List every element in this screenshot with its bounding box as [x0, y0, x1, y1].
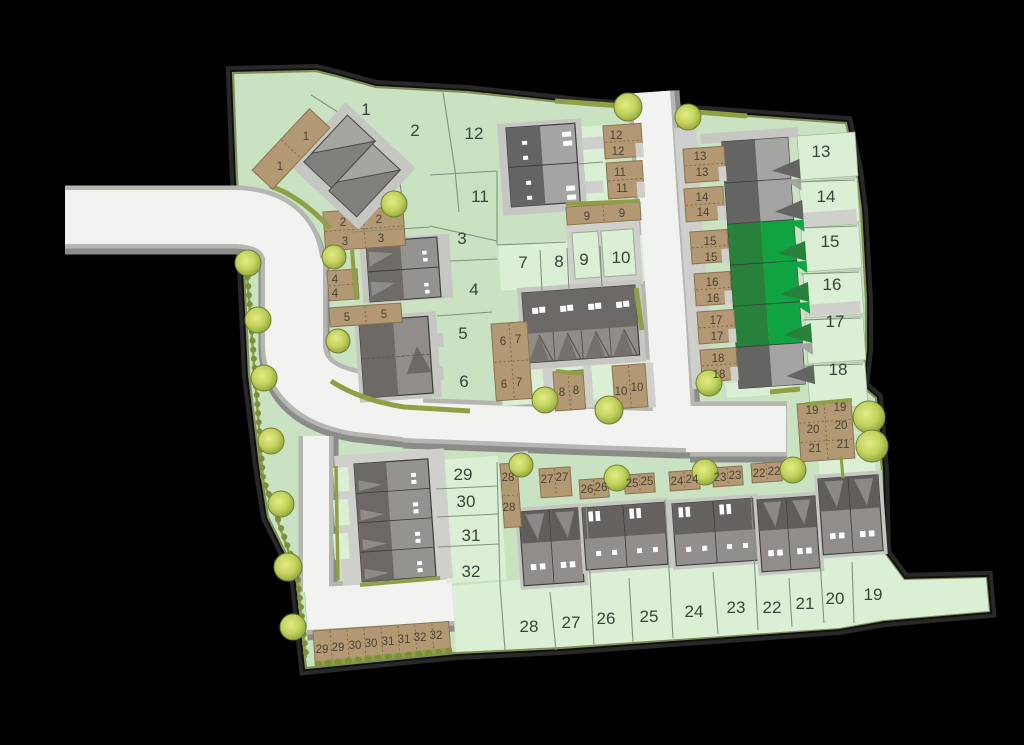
- svg-text:2: 2: [376, 214, 382, 226]
- svg-text:7: 7: [518, 253, 527, 272]
- svg-text:1: 1: [361, 100, 370, 119]
- svg-text:28: 28: [503, 502, 516, 514]
- svg-text:18: 18: [829, 360, 848, 379]
- svg-text:5: 5: [458, 324, 467, 343]
- svg-text:13: 13: [694, 151, 707, 163]
- svg-text:19: 19: [806, 405, 819, 417]
- svg-text:23: 23: [727, 598, 746, 617]
- svg-text:30: 30: [349, 640, 362, 652]
- svg-text:23: 23: [714, 472, 727, 484]
- svg-text:22: 22: [753, 468, 766, 480]
- svg-text:31: 31: [398, 634, 411, 646]
- svg-text:20: 20: [826, 589, 845, 608]
- svg-text:32: 32: [430, 630, 443, 642]
- svg-text:24: 24: [686, 474, 699, 486]
- svg-text:21: 21: [837, 439, 850, 451]
- svg-text:14: 14: [817, 187, 836, 206]
- svg-text:29: 29: [316, 644, 329, 656]
- svg-text:21: 21: [796, 594, 815, 613]
- svg-text:12: 12: [612, 146, 625, 158]
- svg-text:25: 25: [626, 478, 639, 490]
- svg-text:19: 19: [864, 585, 883, 604]
- svg-text:3: 3: [457, 229, 466, 248]
- svg-text:28: 28: [502, 472, 515, 484]
- svg-text:5: 5: [381, 309, 387, 321]
- svg-text:24: 24: [685, 602, 704, 621]
- svg-text:31: 31: [382, 636, 395, 648]
- svg-text:6: 6: [459, 372, 468, 391]
- svg-text:10: 10: [615, 386, 628, 398]
- svg-text:8: 8: [554, 252, 563, 271]
- svg-text:12: 12: [610, 130, 623, 142]
- svg-text:17: 17: [710, 315, 723, 327]
- svg-text:23: 23: [729, 470, 742, 482]
- svg-text:7: 7: [515, 334, 521, 346]
- svg-text:31: 31: [462, 526, 481, 545]
- svg-text:8: 8: [573, 385, 579, 397]
- svg-text:29: 29: [332, 642, 345, 654]
- svg-text:3: 3: [378, 233, 384, 245]
- svg-text:9: 9: [619, 208, 625, 220]
- svg-text:11: 11: [471, 187, 489, 206]
- svg-text:22: 22: [768, 466, 781, 478]
- svg-text:15: 15: [705, 252, 718, 264]
- svg-text:1: 1: [277, 161, 283, 173]
- svg-text:17: 17: [826, 312, 845, 331]
- svg-text:17: 17: [711, 331, 724, 343]
- svg-text:27: 27: [556, 472, 569, 484]
- svg-text:26: 26: [597, 609, 616, 628]
- svg-text:19: 19: [834, 402, 847, 414]
- svg-text:30: 30: [457, 492, 476, 511]
- svg-text:15: 15: [704, 236, 717, 248]
- svg-text:18: 18: [712, 353, 725, 365]
- svg-text:26: 26: [581, 484, 594, 496]
- svg-text:9: 9: [579, 250, 588, 269]
- svg-text:12: 12: [465, 124, 484, 143]
- svg-text:7: 7: [516, 377, 522, 389]
- svg-text:14: 14: [696, 192, 709, 204]
- svg-text:4: 4: [332, 274, 339, 286]
- svg-text:14: 14: [697, 207, 710, 219]
- svg-text:4: 4: [469, 280, 478, 299]
- svg-text:2: 2: [340, 217, 346, 229]
- svg-text:21: 21: [809, 443, 822, 455]
- svg-text:20: 20: [835, 420, 848, 432]
- svg-text:9: 9: [584, 211, 590, 223]
- svg-text:25: 25: [641, 476, 654, 488]
- svg-text:6: 6: [501, 379, 507, 391]
- svg-text:22: 22: [763, 598, 782, 617]
- svg-text:11: 11: [616, 183, 628, 195]
- svg-text:16: 16: [823, 275, 842, 294]
- svg-text:2: 2: [410, 121, 419, 140]
- svg-text:28: 28: [520, 617, 539, 636]
- svg-text:1: 1: [303, 131, 309, 143]
- svg-text:30: 30: [365, 638, 378, 650]
- svg-text:10: 10: [612, 248, 631, 267]
- svg-text:18: 18: [713, 369, 726, 381]
- svg-text:5: 5: [344, 312, 350, 324]
- svg-text:6: 6: [500, 336, 506, 348]
- svg-text:4: 4: [332, 288, 339, 300]
- svg-text:15: 15: [821, 232, 840, 251]
- svg-text:32: 32: [462, 562, 481, 581]
- svg-text:3: 3: [342, 236, 348, 248]
- svg-text:26: 26: [595, 482, 608, 494]
- svg-text:8: 8: [559, 387, 565, 399]
- svg-text:13: 13: [812, 142, 831, 161]
- svg-text:13: 13: [696, 167, 709, 179]
- svg-text:32: 32: [414, 632, 427, 644]
- svg-text:16: 16: [707, 293, 720, 305]
- svg-text:20: 20: [807, 424, 820, 436]
- svg-text:10: 10: [631, 382, 644, 394]
- svg-text:25: 25: [640, 607, 659, 626]
- svg-text:16: 16: [706, 277, 719, 289]
- svg-text:29: 29: [454, 465, 473, 484]
- svg-text:11: 11: [614, 167, 626, 179]
- svg-text:27: 27: [541, 474, 554, 486]
- svg-text:24: 24: [671, 476, 684, 488]
- svg-text:27: 27: [562, 613, 581, 632]
